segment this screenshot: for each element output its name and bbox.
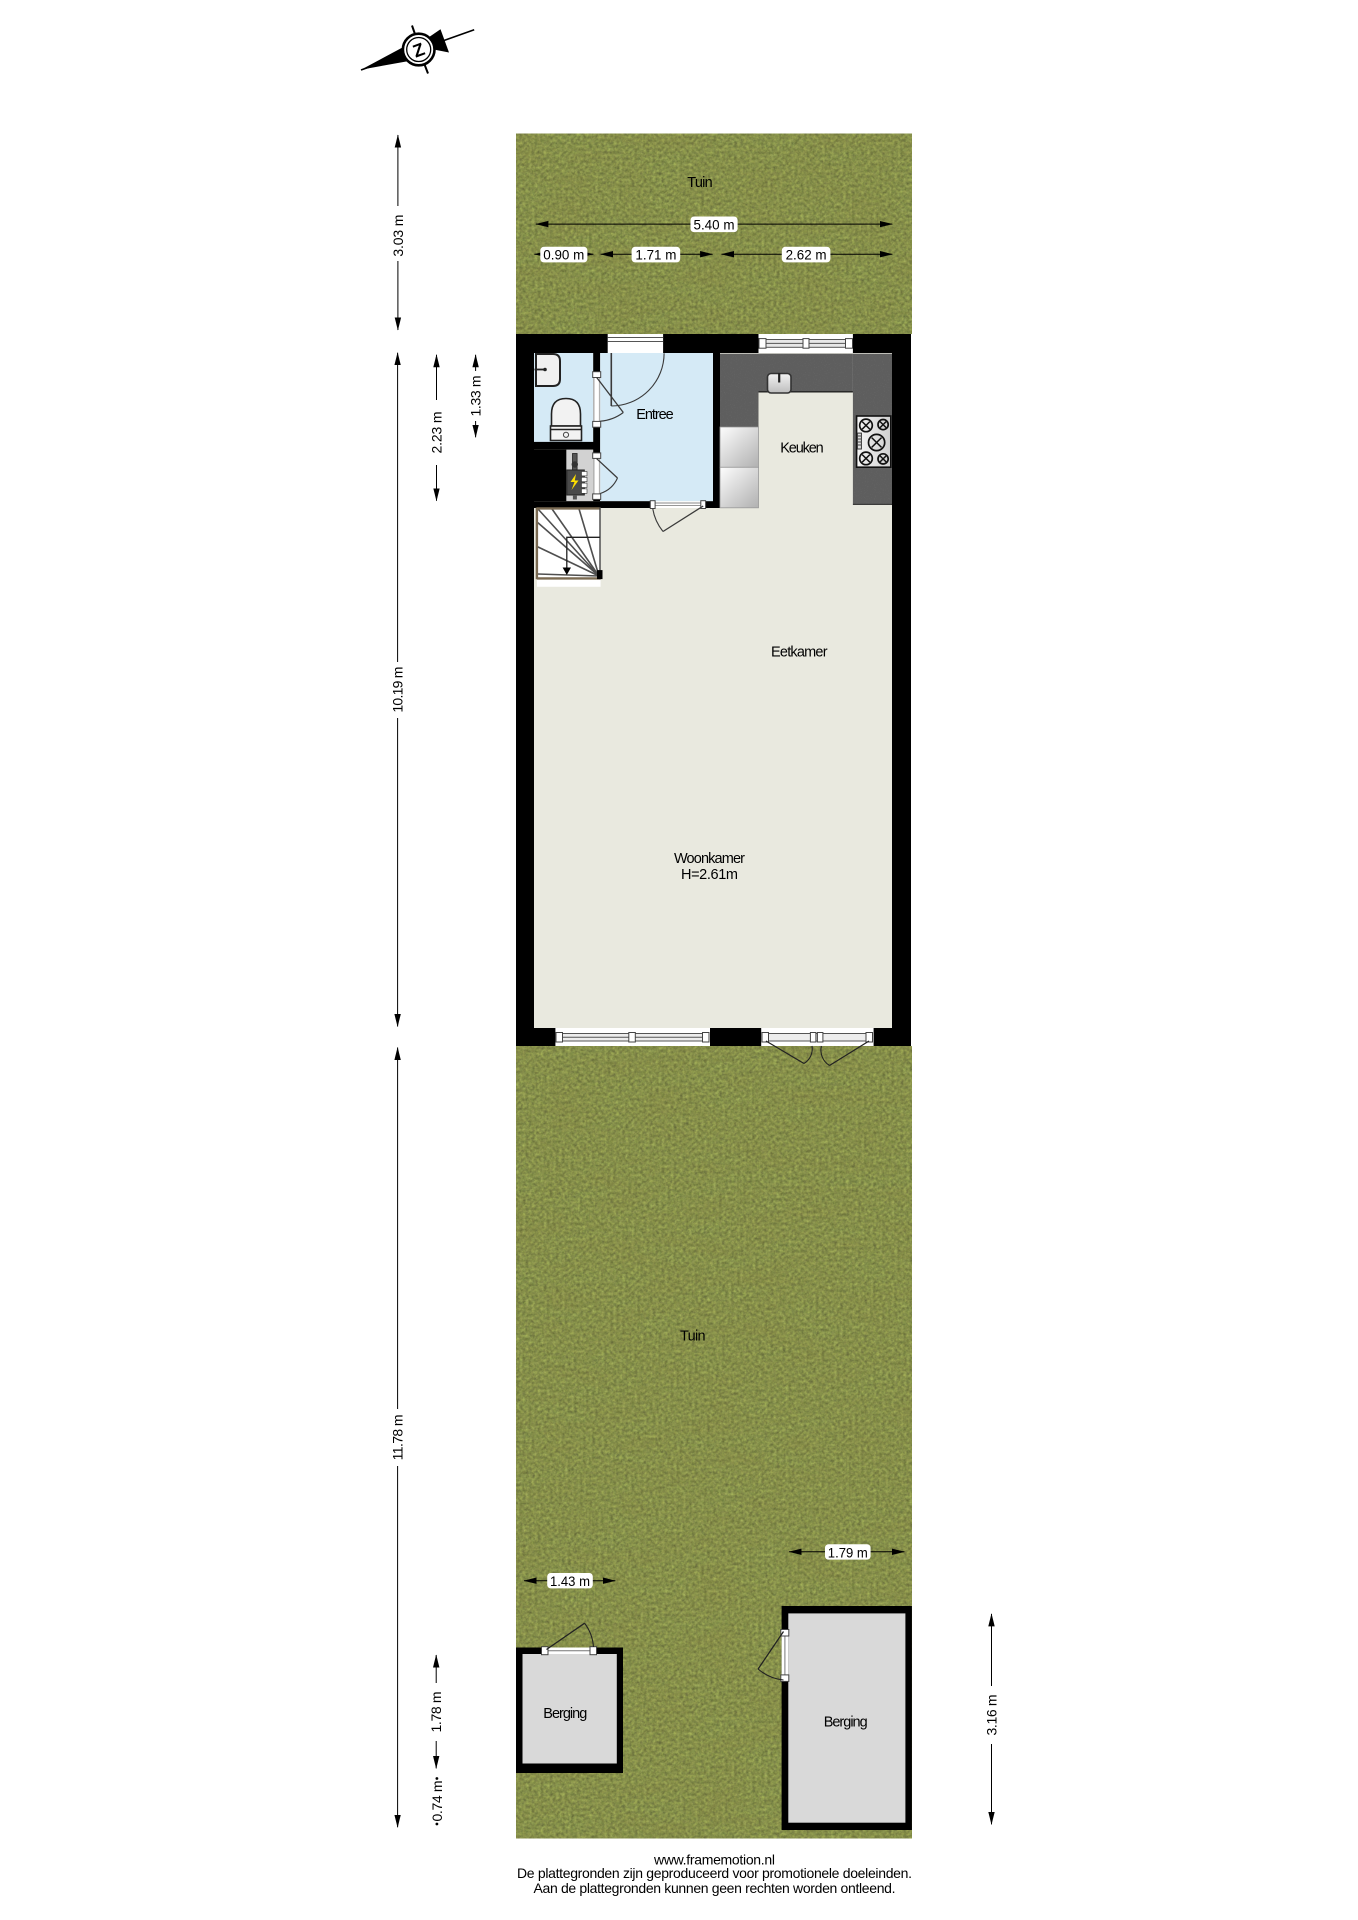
svg-text:Tuin: Tuin xyxy=(687,175,713,191)
svg-text:0.90 m: 0.90 m xyxy=(543,247,584,263)
svg-text:Entree: Entree xyxy=(636,407,674,423)
svg-text:0.74 m: 0.74 m xyxy=(429,1781,445,1822)
svg-text:1.43 m: 1.43 m xyxy=(550,1573,590,1589)
svg-text:Tuin: Tuin xyxy=(680,1329,706,1345)
svg-text:1.79 m: 1.79 m xyxy=(828,1544,868,1560)
svg-text:10.19 m: 10.19 m xyxy=(390,667,406,713)
svg-text:5.40 m: 5.40 m xyxy=(694,217,735,233)
svg-text:1.78 m: 1.78 m xyxy=(428,1692,444,1733)
svg-text:Keuken: Keuken xyxy=(780,441,824,457)
svg-text:Berging: Berging xyxy=(543,1706,587,1722)
svg-text:Berging: Berging xyxy=(824,1714,868,1730)
svg-text:Eetkamer: Eetkamer xyxy=(771,645,828,661)
svg-text:Woonkamer: Woonkamer xyxy=(674,851,745,867)
svg-text:1.71 m: 1.71 m xyxy=(635,247,676,263)
svg-text:1.33 m: 1.33 m xyxy=(468,376,484,417)
svg-text:3.16 m: 3.16 m xyxy=(984,1695,1000,1736)
svg-text:3.03 m: 3.03 m xyxy=(390,215,406,257)
svg-text:De plattegronden zijn geproduc: De plattegronden zijn geproduceerd voor … xyxy=(517,1865,912,1881)
svg-text:2.62 m: 2.62 m xyxy=(786,247,827,263)
svg-text:H=2.61m: H=2.61m xyxy=(681,867,738,883)
svg-text:2.23 m: 2.23 m xyxy=(429,412,445,454)
svg-text:Aan de plattegronden kunnen ge: Aan de plattegronden kunnen geen rechten… xyxy=(534,1880,896,1896)
svg-text:11.78 m: 11.78 m xyxy=(390,1414,406,1460)
